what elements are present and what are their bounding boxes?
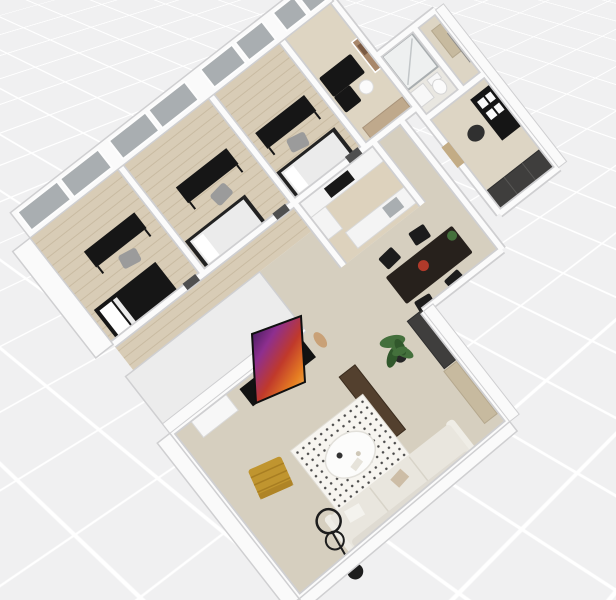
floorplan-canvas[interactable]: [0, 0, 616, 600]
apartment: [0, 0, 616, 600]
